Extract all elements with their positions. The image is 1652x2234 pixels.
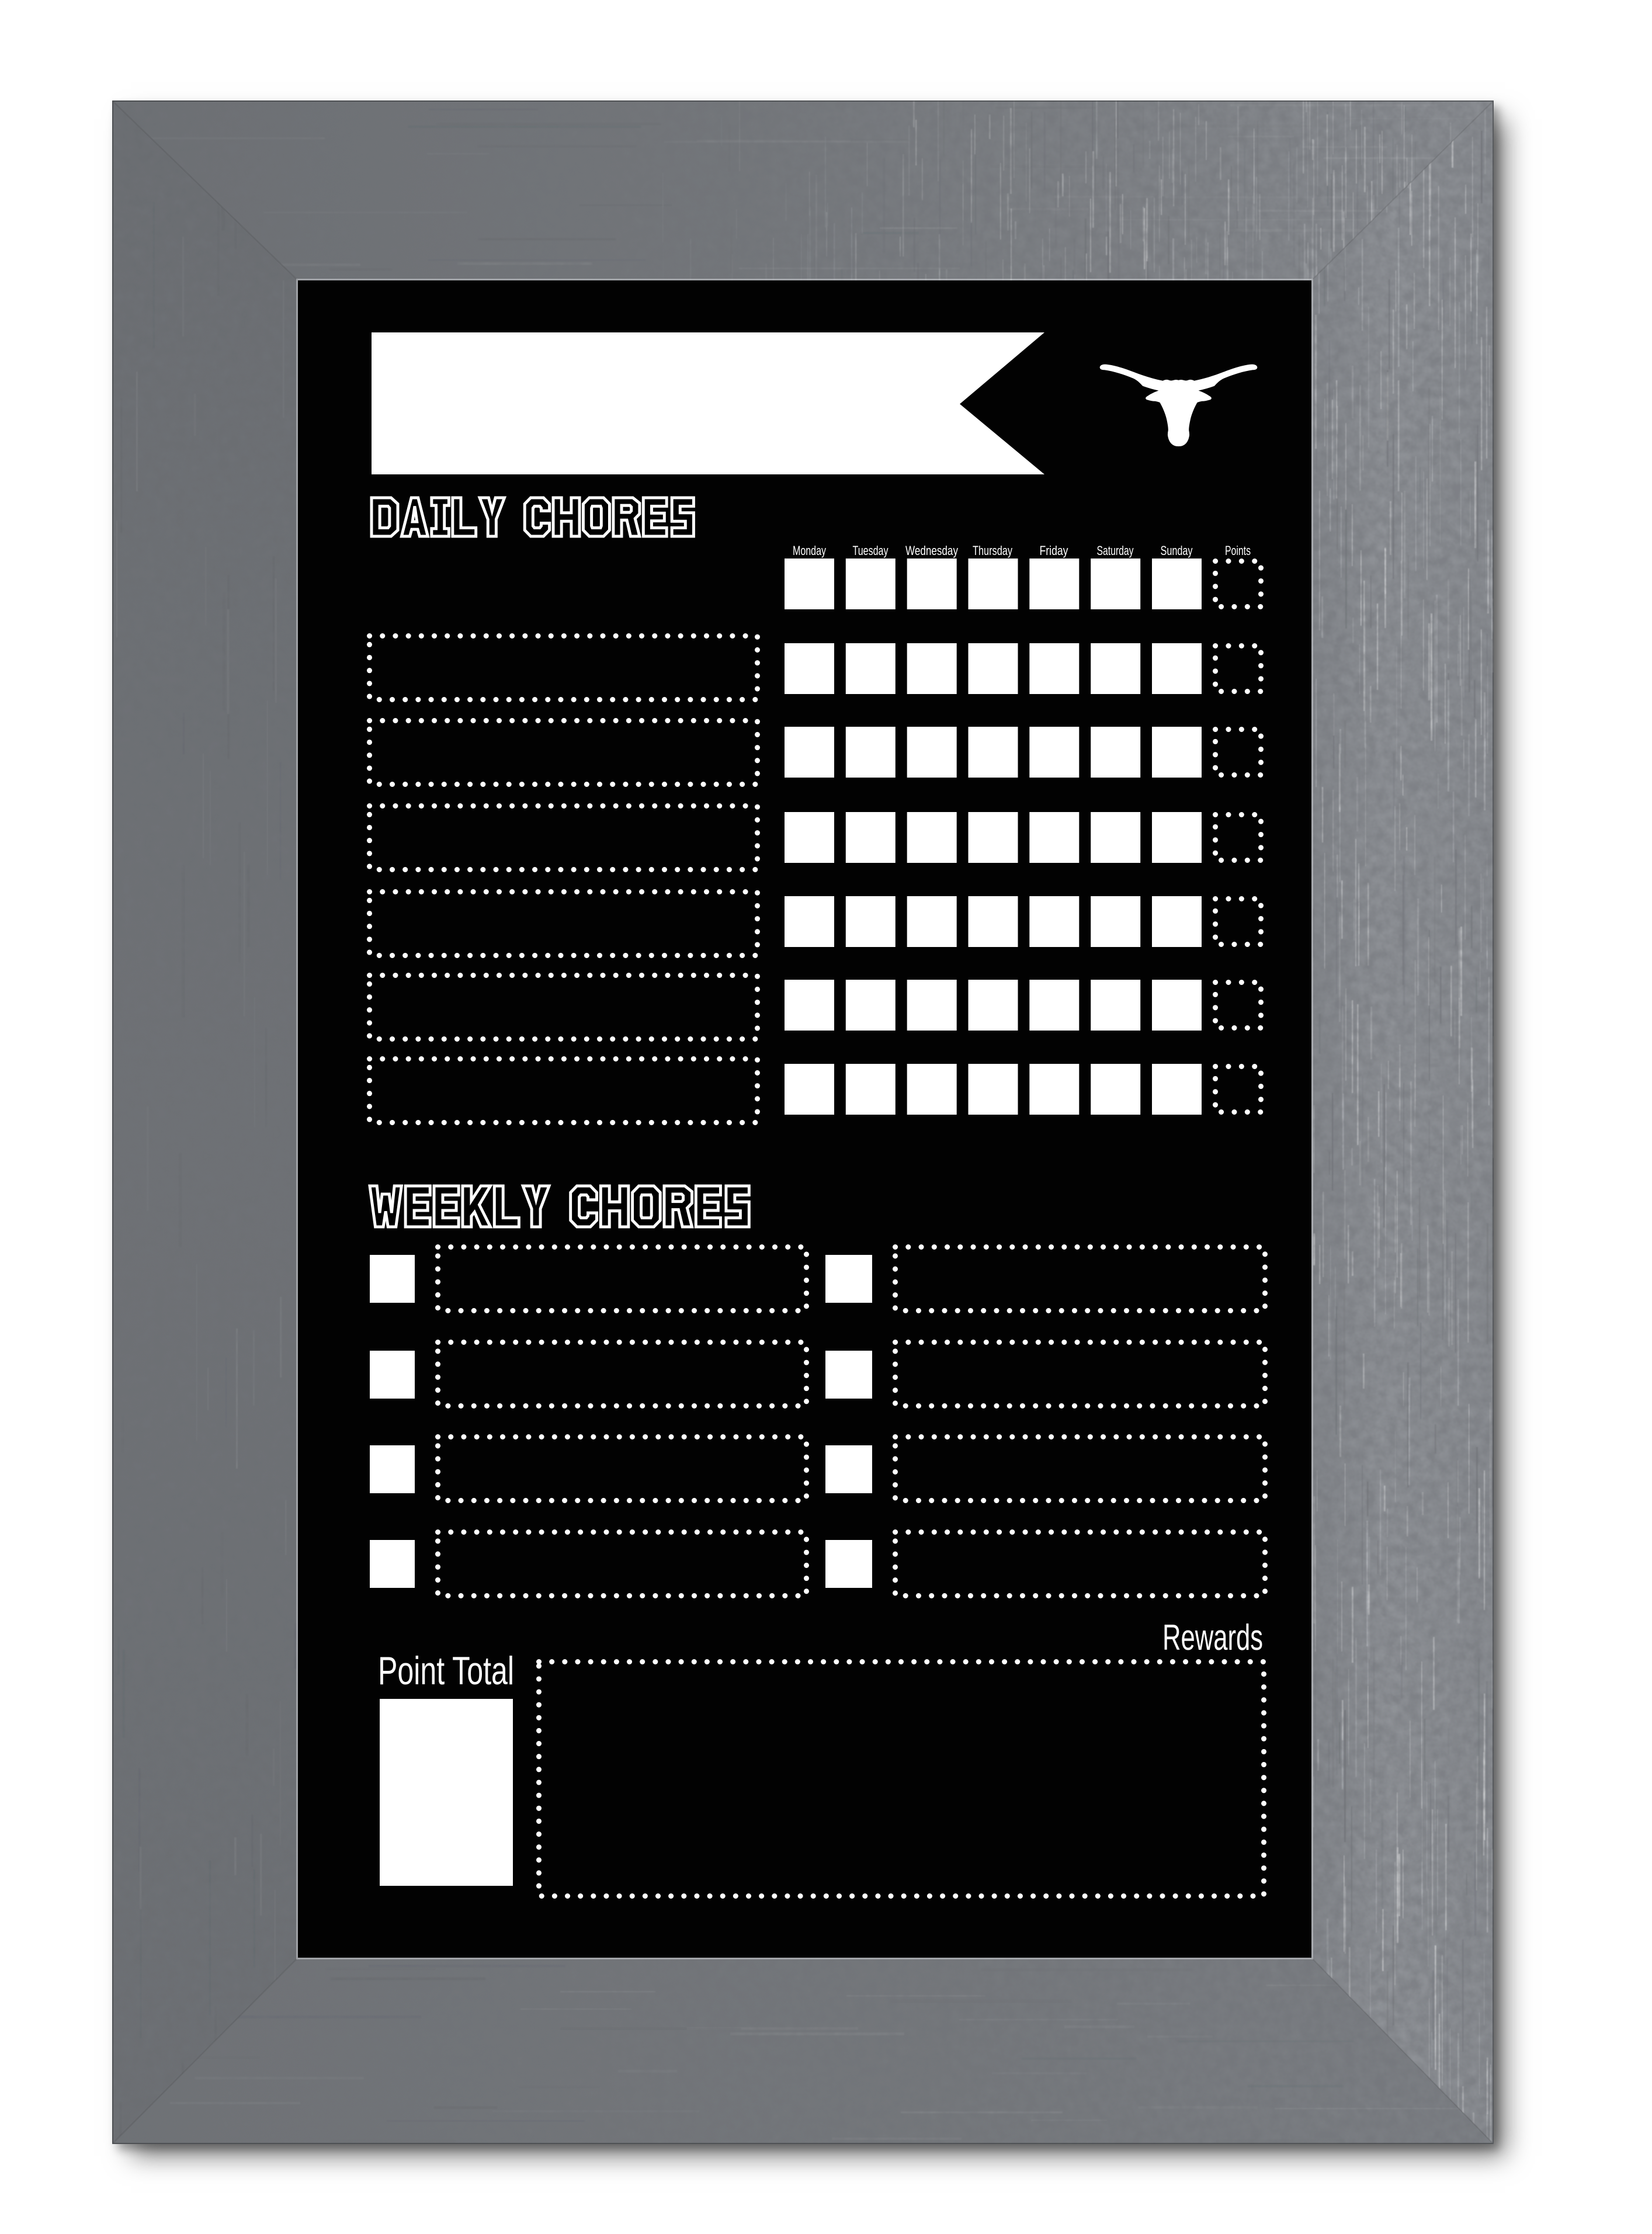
svg-text:Sunday: Sunday xyxy=(1161,543,1193,558)
svg-text:Rewards: Rewards xyxy=(1162,1618,1263,1658)
svg-text:Point Total: Point Total xyxy=(378,1649,514,1693)
svg-text:Friday: Friday xyxy=(1040,543,1068,558)
svg-text:Thursday: Thursday xyxy=(973,543,1012,558)
svg-text:Wednesday: Wednesday xyxy=(905,543,958,558)
svg-text:Tuesday: Tuesday xyxy=(853,543,889,558)
svg-text:Monday: Monday xyxy=(793,543,826,558)
svg-text:Points: Points xyxy=(1225,543,1251,558)
svg-text:Saturday: Saturday xyxy=(1097,543,1134,558)
